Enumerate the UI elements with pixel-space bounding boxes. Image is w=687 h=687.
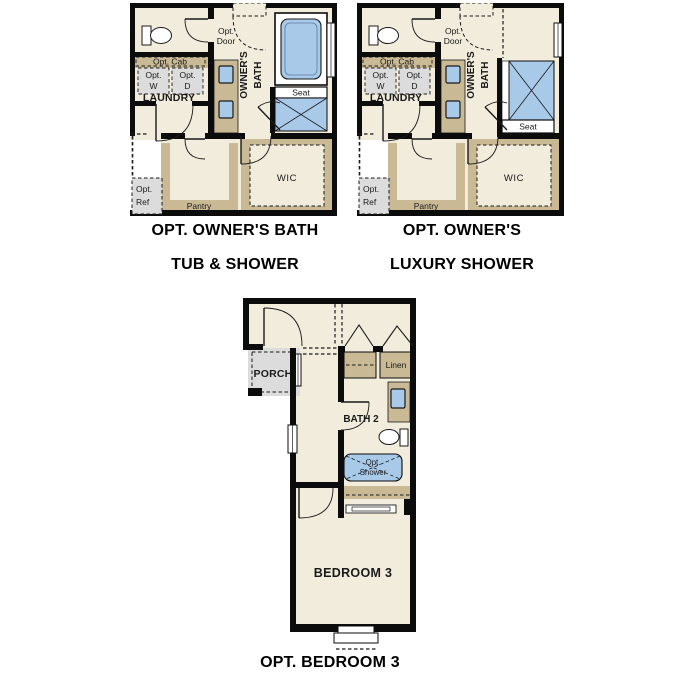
- sink-icon: [446, 101, 460, 118]
- svg-text:D: D: [184, 81, 190, 91]
- opt-cab-label: Opt. Cab: [153, 57, 187, 67]
- opt-door-label: Opt.: [445, 26, 461, 36]
- svg-text:BATH: BATH: [253, 61, 264, 88]
- pantry-label: Pantry: [414, 201, 439, 211]
- bath2-vanity: [388, 382, 410, 422]
- sink-icon: [219, 101, 233, 118]
- svg-text:W: W: [376, 81, 384, 91]
- pantry-label: Pantry: [187, 201, 212, 211]
- bedroom-window: [334, 626, 378, 649]
- sink-icon: [391, 389, 405, 408]
- pantry: Pantry: [388, 142, 465, 212]
- svg-text:Shower: Shower: [360, 468, 387, 477]
- opt-cab-label: Opt. Cab: [380, 57, 414, 67]
- svg-text:W: W: [149, 81, 157, 91]
- vanity: [214, 60, 238, 133]
- wic-label: WIC: [504, 173, 524, 184]
- toilet-icon: [142, 26, 172, 45]
- walk-in-closet: WIC: [241, 139, 332, 212]
- bedroom3-label: BEDROOM 3: [314, 566, 392, 580]
- hall-window: [288, 425, 297, 453]
- optional-refrigerator-box: Opt. Ref: [132, 178, 162, 214]
- optional-refrigerator-box: Opt. Ref: [359, 178, 389, 214]
- svg-text:Opt.: Opt.: [406, 70, 422, 80]
- wic-label: WIC: [277, 173, 297, 184]
- floorplan-sheet: Opt. Cab Opt. W Opt. D LAUNDRY Pantry: [0, 0, 687, 687]
- linen-label: Linen: [386, 360, 407, 370]
- vanity: [441, 60, 465, 133]
- pantry: Pantry: [161, 142, 238, 212]
- floorplan-opt-bedroom3: PORCH Linen Opt. Show: [240, 296, 420, 656]
- svg-text:Ref: Ref: [363, 197, 377, 207]
- svg-text:Opt.: Opt.: [145, 70, 161, 80]
- optional-cabinet: [344, 352, 376, 378]
- owners-bath-label: OWNER'S: [466, 51, 477, 99]
- optional-shower-icon: Opt. Shower: [344, 454, 402, 481]
- svg-text:Opt.: Opt.: [363, 184, 379, 194]
- svg-text:Seat: Seat: [292, 88, 310, 98]
- svg-text:BATH: BATH: [480, 61, 491, 88]
- walk-in-closet: WIC: [468, 139, 559, 212]
- svg-text:D: D: [411, 81, 417, 91]
- svg-text:Opt.: Opt.: [372, 70, 388, 80]
- owners-bath-label: OWNER'S: [239, 51, 250, 99]
- porch-label: PORCH: [254, 368, 293, 380]
- bath2-label: BATH 2: [343, 414, 379, 425]
- bathtub-icon: [275, 13, 327, 85]
- toilet-icon: [379, 429, 408, 446]
- caption-owners-luxury-shower: OPT. OWNER'S LUXURY SHOWER: [351, 222, 573, 273]
- caption-opt-bedroom3: OPT. BEDROOM 3: [228, 654, 432, 671]
- luxury-shower-icon: [502, 61, 554, 120]
- toilet-icon: [369, 26, 399, 45]
- svg-text:Opt.: Opt.: [136, 184, 152, 194]
- caption-owners-bath-tub-shower: OPT. OWNER'S BATH TUB & SHOWER: [124, 222, 346, 273]
- svg-text:Opt.: Opt.: [366, 458, 381, 467]
- window: [327, 23, 335, 77]
- opt-door-label: Opt.: [218, 26, 234, 36]
- svg-text:Door: Door: [444, 36, 463, 46]
- svg-text:Ref: Ref: [136, 197, 150, 207]
- linen-closet: Linen: [380, 352, 412, 378]
- svg-text:Seat: Seat: [519, 122, 537, 132]
- shower-seat: Seat: [275, 87, 327, 98]
- sink-icon: [219, 66, 233, 83]
- floorplan-owners-luxury-shower: Opt. Cab Opt. W Opt. D LAUNDRY Pantry WI…: [357, 3, 567, 221]
- shower-icon: [275, 98, 327, 131]
- window: [554, 23, 562, 57]
- svg-text:Opt.: Opt.: [179, 70, 195, 80]
- entry-floor: [243, 298, 343, 350]
- sink-icon: [446, 66, 460, 83]
- svg-text:Door: Door: [217, 36, 236, 46]
- shower-seat: Seat: [502, 120, 554, 133]
- floorplan-owners-bath-tub-shower: Opt. Cab Opt. W Opt. D LAUNDRY Pantry: [130, 3, 340, 221]
